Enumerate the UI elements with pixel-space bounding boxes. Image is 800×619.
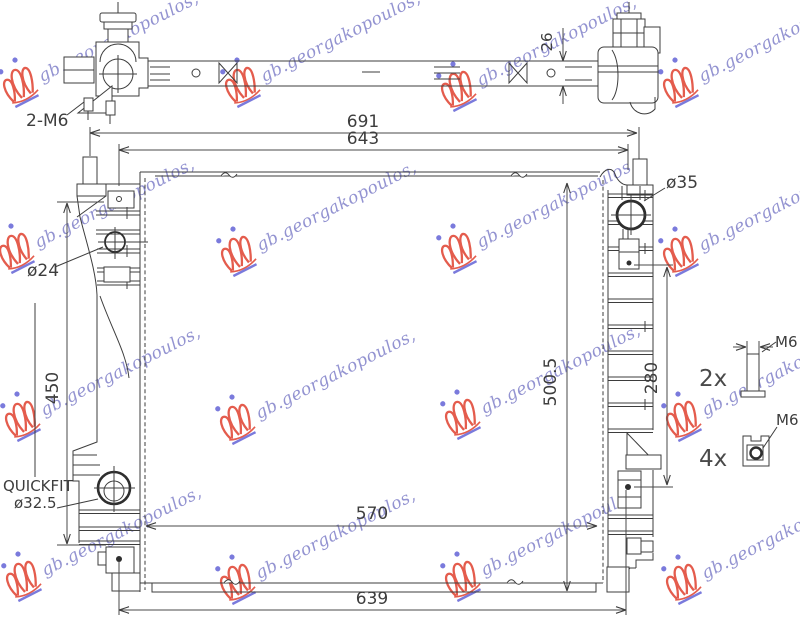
drawing-layer: 26 2-M6 691 643 (0, 0, 800, 619)
quickfit-size: ø32.5 (14, 494, 57, 512)
dim-core-height: 500.5 (541, 358, 561, 407)
radiator-technical-drawing: gb.georgakopoulos, gb.georgakopoulos, gb… (0, 0, 800, 619)
dim-mount-width-bottom: 639 (356, 589, 388, 609)
top-dimensions: 691 643 (90, 112, 639, 186)
dim-left-height: 450 (43, 372, 63, 404)
clip-size-label: M6 (776, 411, 799, 429)
dim-core-width: 570 (356, 504, 388, 524)
dim-mount-width: 643 (347, 129, 379, 149)
quickfit-label: QUICKFIT (3, 477, 74, 495)
dim-bracket-span: 280 (642, 362, 662, 394)
clip-nut-icon (743, 436, 769, 466)
front-view: ø24 QUICKFIT ø32.5 (3, 157, 698, 592)
callout-2-m6: 2-M6 (26, 111, 68, 131)
hardware-legend: 2x M6 4x M6 (699, 333, 799, 472)
front-dimensions: 450 500.5 280 570 639 (43, 183, 673, 615)
bolt-size-label: M6 (775, 333, 798, 351)
dim-port-24: ø24 (27, 261, 59, 281)
dim-thickness: 26 (538, 32, 556, 51)
bolt-quantity: 2x (699, 366, 727, 392)
clip-quantity: 4x (699, 446, 727, 472)
dim-inlet-35: ø35 (666, 173, 698, 193)
quickfit-port (73, 455, 135, 512)
top-view: 26 2-M6 (26, 2, 660, 131)
bolt-icon (733, 341, 773, 397)
